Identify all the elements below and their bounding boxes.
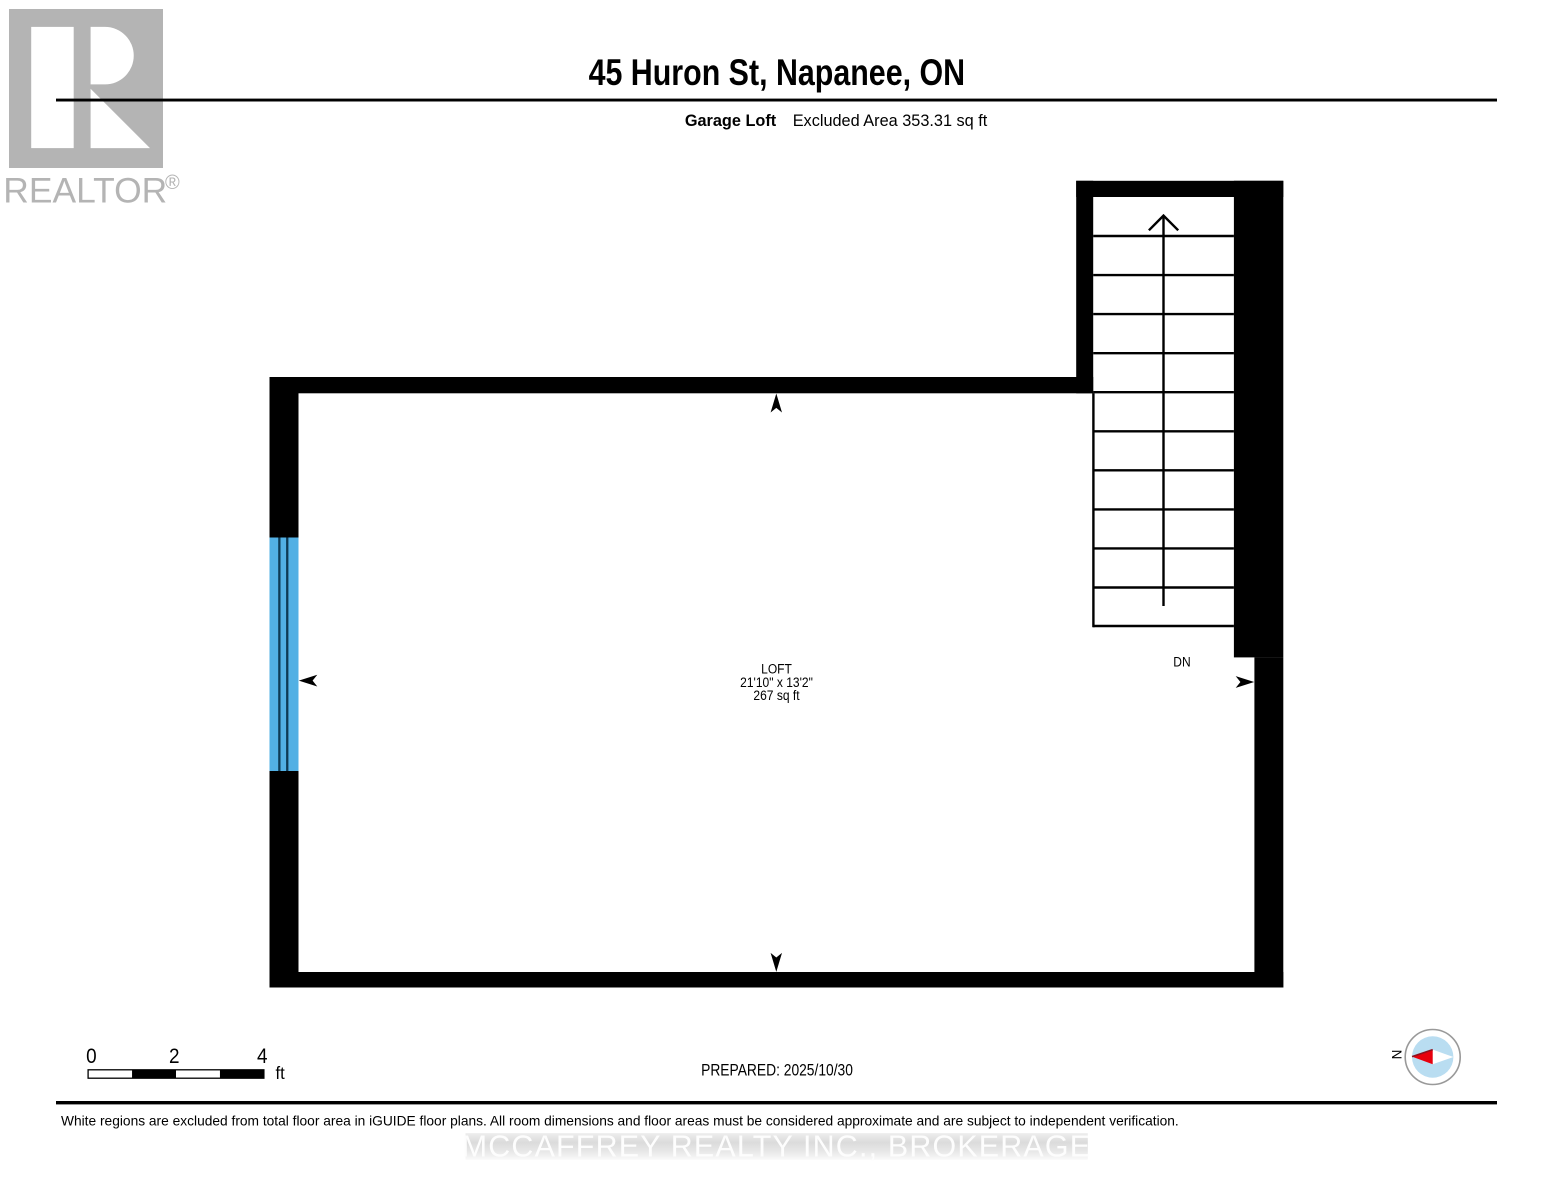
svg-text:0: 0 bbox=[86, 1045, 97, 1068]
svg-text:®: ® bbox=[165, 172, 180, 194]
svg-text:ft: ft bbox=[276, 1063, 285, 1082]
svg-text:DN: DN bbox=[1173, 654, 1190, 670]
svg-text:Excluded Area 353.31 sq ft: Excluded Area 353.31 sq ft bbox=[793, 112, 988, 130]
svg-text:PREPARED: 2025/10/30: PREPARED: 2025/10/30 bbox=[701, 1061, 853, 1079]
svg-text:REALTOR: REALTOR bbox=[3, 171, 167, 211]
svg-text:N: N bbox=[1390, 1050, 1405, 1060]
svg-text:45 Huron St, Napanee, ON: 45 Huron St, Napanee, ON bbox=[589, 52, 965, 94]
svg-text:2: 2 bbox=[169, 1045, 180, 1068]
svg-text:4: 4 bbox=[257, 1045, 268, 1068]
svg-text:Garage Loft: Garage Loft bbox=[685, 112, 777, 130]
svg-text:White regions are excluded fro: White regions are excluded from total fl… bbox=[61, 1112, 1179, 1128]
svg-text:MCCAFFREY REALTY INC., BROKERA: MCCAFFREY REALTY INC., BROKERAGE bbox=[462, 1129, 1091, 1163]
svg-text:267 sq ft: 267 sq ft bbox=[753, 687, 799, 703]
